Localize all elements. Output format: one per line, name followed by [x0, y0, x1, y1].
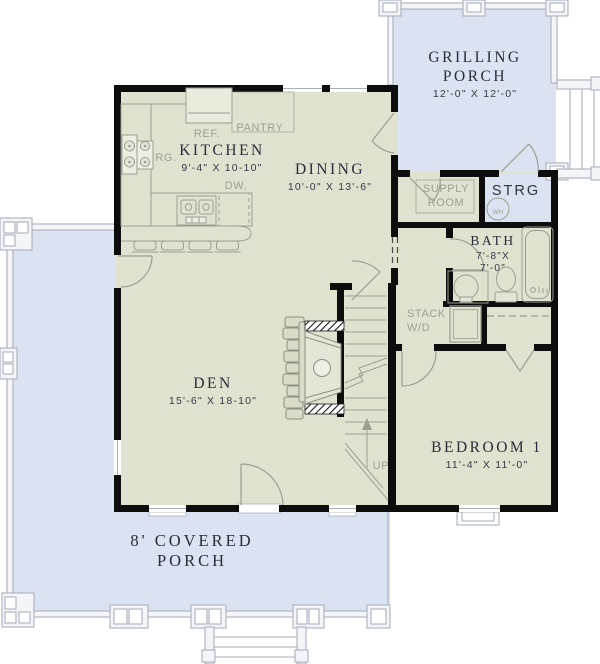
- firebox-circle: [314, 360, 331, 377]
- window: [114, 440, 121, 475]
- porch-column: [110, 605, 148, 628]
- porch-column: [2, 593, 34, 627]
- range: [122, 135, 153, 174]
- porch-column: [367, 605, 390, 628]
- window: [149, 505, 186, 512]
- floor-plan-drawing: [0, 0, 600, 664]
- window: [459, 505, 500, 512]
- porch-column: [463, 0, 485, 16]
- porch-column: [191, 605, 226, 628]
- porch-column: [546, 0, 568, 16]
- porch-column: [379, 0, 401, 16]
- fireplace-stone: [283, 317, 306, 419]
- refrigerator: [186, 88, 232, 123]
- front-steps: [202, 627, 308, 664]
- porch-column: [0, 348, 17, 379]
- fireplace-hatch: [305, 404, 344, 414]
- fireplace-hatch: [305, 321, 344, 331]
- porch-column: [0, 218, 32, 250]
- window: [330, 85, 367, 92]
- window: [329, 505, 356, 512]
- rear-stoop: [457, 512, 499, 525]
- porch-column: [293, 605, 324, 628]
- front-door-threshold: [238, 504, 281, 513]
- floor-plan: GRILLING PORCH 12'-0" X 12'-0" KITCHEN 9…: [0, 0, 600, 664]
- window: [283, 85, 322, 92]
